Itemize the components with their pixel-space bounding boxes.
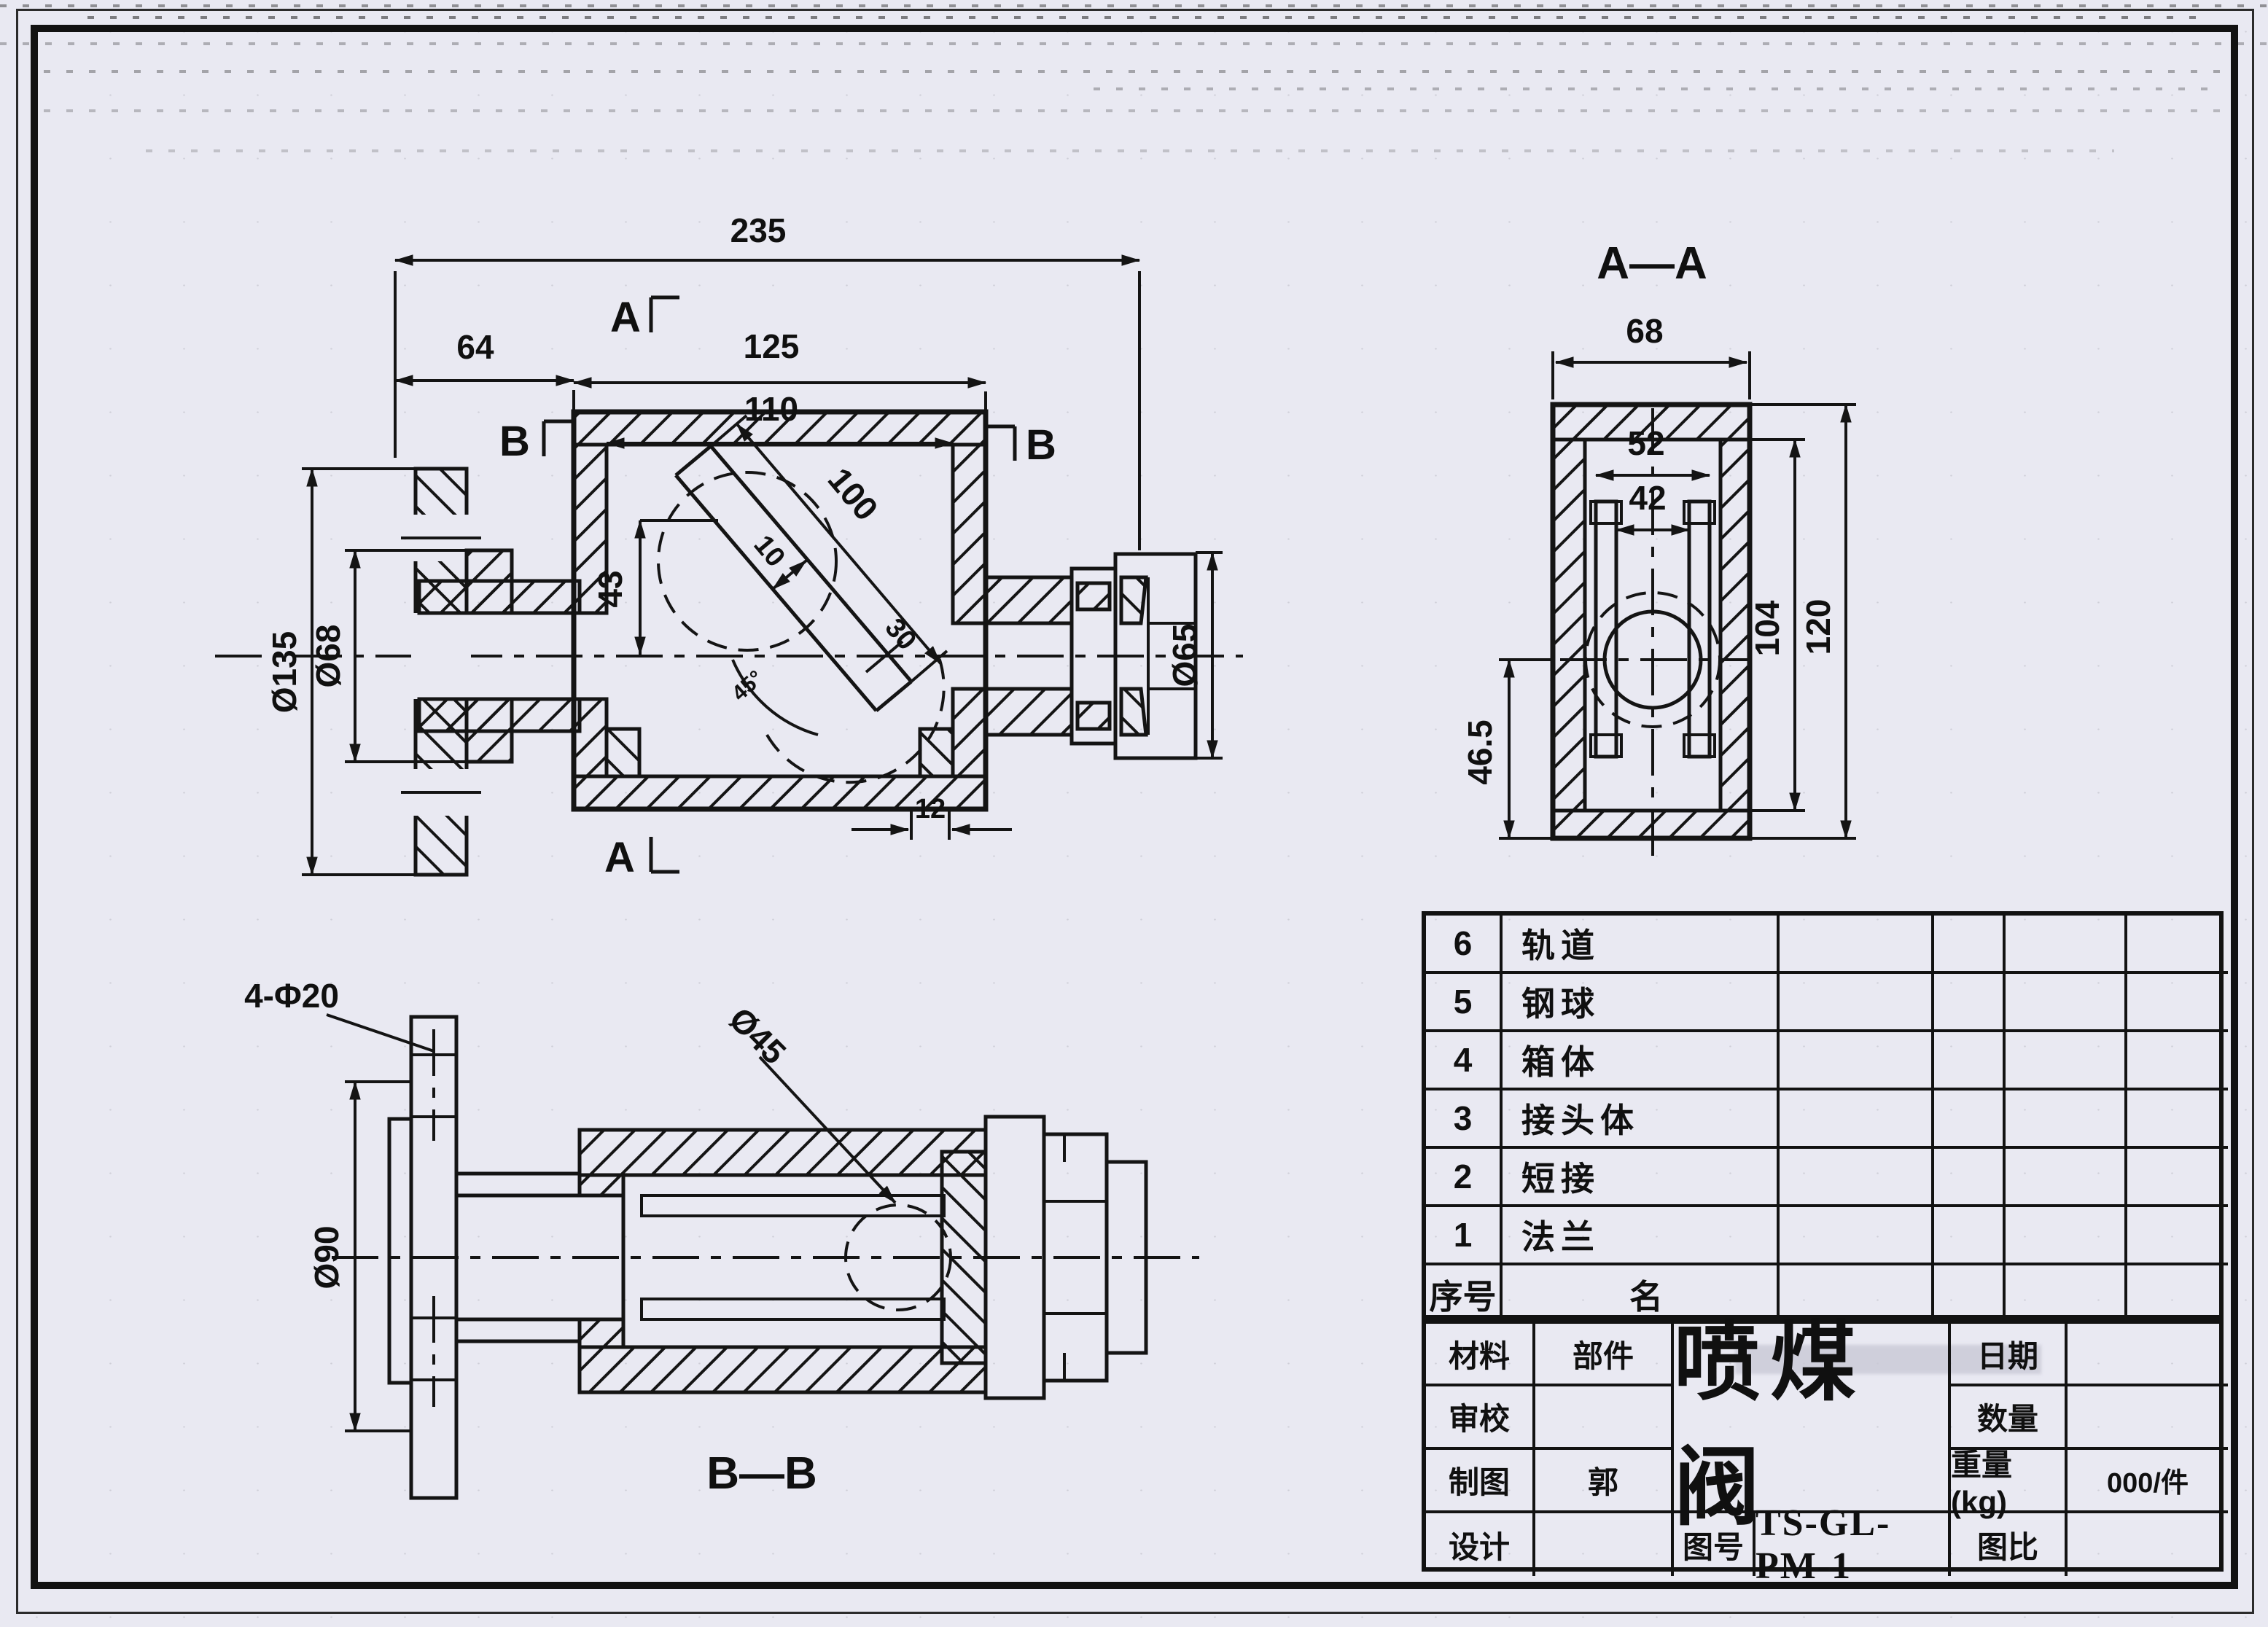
part-name: 接头体 — [1503, 1090, 1780, 1149]
dim-bolt-holes: 4-Φ20 — [244, 977, 339, 1015]
header-no: 序号 — [1426, 1265, 1503, 1324]
empty-cell — [2127, 916, 2228, 974]
dim-step-12: 12 — [915, 794, 946, 824]
dim-angle-45: 45° — [728, 666, 768, 706]
section-bb-view: B—B — [244, 977, 1199, 1499]
dim-bore-len-100: 100 — [821, 461, 886, 528]
empty-cell — [2006, 974, 2127, 1032]
dim-125: 125 — [744, 327, 800, 365]
empty-cell — [2127, 1207, 2228, 1265]
part-name: 轨道 — [1503, 916, 1780, 974]
part-no: 2 — [1426, 1149, 1503, 1207]
dim-aa-120: 120 — [1799, 599, 1837, 655]
box-body-section — [574, 412, 986, 809]
quantity-value — [2068, 1386, 2228, 1450]
empty-cell — [2006, 916, 2127, 974]
empty-cell — [1780, 916, 1934, 974]
dim-aa-42: 42 — [1629, 479, 1666, 517]
part-no: 5 — [1426, 974, 1503, 1032]
dim-joint-65: Ø65 — [1166, 624, 1204, 687]
aa-dimensions: 68 52 42 104 120 46.5 — [1461, 312, 1856, 838]
empty-cell — [2127, 1149, 2228, 1207]
dim-aa-68: 68 — [1626, 312, 1663, 350]
part-name: 钢球 — [1503, 974, 1780, 1032]
title-block: 材料 部件 喷煤阀 日期 审校 数量 制图 郭 重量(kg) 000/件 设计 … — [1422, 1319, 2224, 1572]
empty-cell — [2006, 1265, 2127, 1324]
front-view: 235 64 125 110 Ø135 Ø68 43 — [215, 211, 1243, 881]
review-label: 审校 — [1426, 1386, 1535, 1450]
component-label: 部件 — [1535, 1324, 1674, 1386]
part-no: 6 — [1426, 916, 1503, 974]
section-mark-b-right: B — [1026, 421, 1056, 469]
empty-cell — [1780, 974, 1934, 1032]
empty-cell — [2006, 1149, 2127, 1207]
section-aa-title: A—A — [1597, 238, 1707, 289]
scale-value — [2068, 1513, 2228, 1576]
part-no: 4 — [1426, 1032, 1503, 1090]
dim-110: 110 — [744, 390, 798, 428]
section-aa-view: A—A 68 52 — [1461, 238, 1856, 867]
dim-offset-43: 43 — [591, 570, 629, 607]
empty-cell — [2006, 1090, 2127, 1149]
empty-cell — [2127, 1265, 2228, 1324]
part-name: 法兰 — [1503, 1207, 1780, 1265]
empty-cell — [1934, 916, 2006, 974]
section-mark-b-left: B — [499, 418, 530, 465]
empty-cell — [2006, 1032, 2127, 1090]
drawing-no-label: 图号 — [1674, 1513, 1755, 1576]
part-no: 1 — [1426, 1207, 1503, 1265]
empty-cell — [1934, 974, 2006, 1032]
dim-64: 64 — [456, 328, 494, 366]
dim-bb-45: Ø45 — [722, 1000, 793, 1072]
empty-cell — [2127, 1032, 2228, 1090]
section-mark-a-bottom: A — [604, 834, 635, 881]
scale-label: 图比 — [1951, 1513, 2068, 1576]
drawing-sheet: 235 64 125 110 Ø135 Ø68 43 — [0, 0, 2268, 1627]
dim-aa-104: 104 — [1748, 600, 1786, 656]
empty-cell — [2127, 1090, 2228, 1149]
dim-bb-90: Ø90 — [308, 1226, 346, 1289]
date-label: 日期 — [1951, 1324, 2068, 1386]
empty-cell — [1780, 1149, 1934, 1207]
weight-value: 000/件 — [2068, 1450, 2228, 1513]
empty-cell — [1934, 1149, 2006, 1207]
dim-flange-od: Ø135 — [265, 631, 303, 714]
section-bb-title: B—B — [706, 1448, 817, 1499]
empty-cell — [1934, 1032, 2006, 1090]
date-value — [2068, 1324, 2228, 1386]
draft-name: 郭 — [1535, 1450, 1674, 1513]
flange-section — [401, 469, 512, 875]
dim-hub-68: Ø68 — [309, 625, 347, 688]
dim-total-235: 235 — [730, 211, 787, 249]
empty-cell — [1934, 1207, 2006, 1265]
bb-box — [580, 1130, 986, 1392]
empty-cell — [1780, 1207, 1934, 1265]
part-name: 短接 — [1503, 1149, 1780, 1207]
review-value — [1535, 1386, 1674, 1450]
empty-cell — [1780, 1090, 1934, 1149]
parts-list-table: 6 轨道 5 钢球 4 箱体 3 接头体 2 短接 1 法兰 序号 名 — [1422, 911, 2224, 1319]
drawing-no-value: TS-GL-PM-1 — [1755, 1513, 1948, 1576]
draft-label: 制图 — [1426, 1450, 1535, 1513]
design-label: 设计 — [1426, 1513, 1535, 1576]
dim-aa-52: 52 — [1627, 424, 1664, 462]
weight-label: 重量(kg) — [1951, 1450, 2068, 1513]
drawing-title: 喷煤阀 — [1674, 1324, 1951, 1513]
material-label: 材料 — [1426, 1324, 1535, 1386]
drawing-no-cell: 图号 TS-GL-PM-1 — [1674, 1513, 1951, 1576]
part-name: 箱体 — [1503, 1032, 1780, 1090]
part-no: 3 — [1426, 1090, 1503, 1149]
design-value — [1535, 1513, 1674, 1576]
empty-cell — [1934, 1090, 2006, 1149]
dim-aa-46-5: 46.5 — [1461, 719, 1499, 785]
empty-cell — [1780, 1032, 1934, 1090]
section-mark-a-top: A — [610, 294, 641, 341]
empty-cell — [2006, 1207, 2127, 1265]
empty-cell — [2127, 974, 2228, 1032]
